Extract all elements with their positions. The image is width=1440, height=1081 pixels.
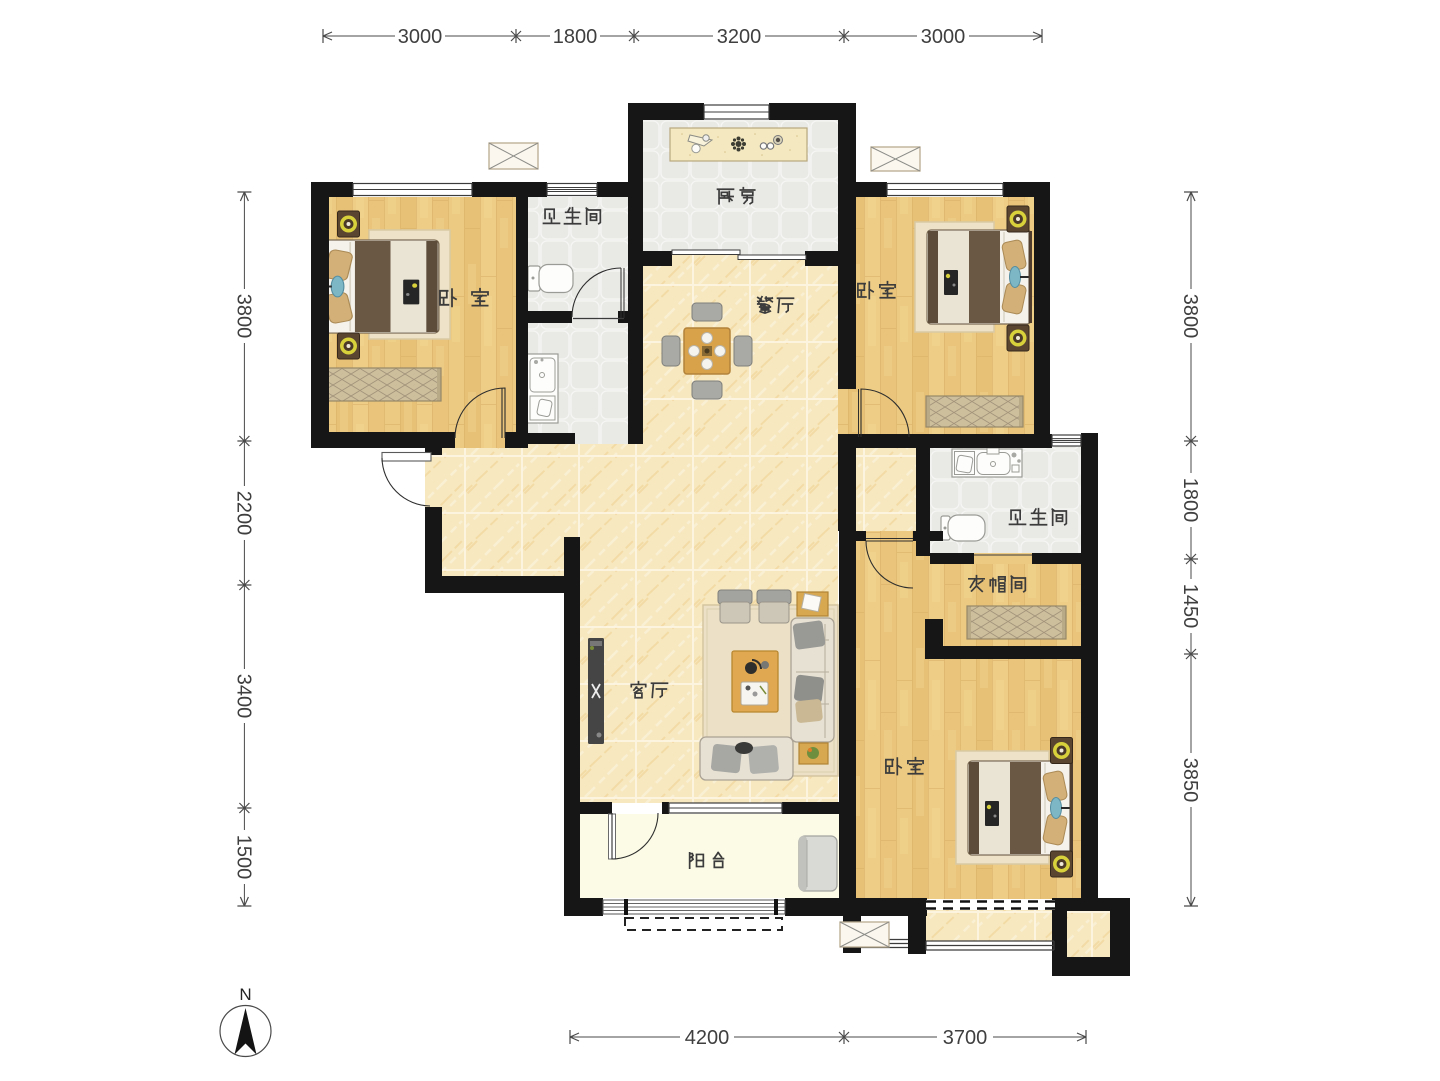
svg-text:1800: 1800 (553, 26, 598, 48)
svg-text:1450: 1450 (1179, 584, 1201, 629)
svg-text:1500: 1500 (232, 835, 254, 880)
svg-text:3000: 3000 (398, 26, 443, 48)
svg-text:3850: 3850 (1179, 758, 1201, 803)
svg-text:3700: 3700 (943, 1027, 988, 1049)
svg-text:3200: 3200 (717, 26, 762, 48)
svg-text:2200: 2200 (232, 491, 254, 536)
svg-text:3400: 3400 (232, 674, 254, 719)
svg-text:3000: 3000 (921, 26, 966, 48)
svg-text:3800: 3800 (1179, 294, 1201, 339)
svg-text:N: N (239, 985, 251, 1004)
svg-text:4200: 4200 (685, 1027, 730, 1049)
svg-text:1800: 1800 (1179, 478, 1201, 523)
svg-text:3800: 3800 (232, 294, 254, 339)
